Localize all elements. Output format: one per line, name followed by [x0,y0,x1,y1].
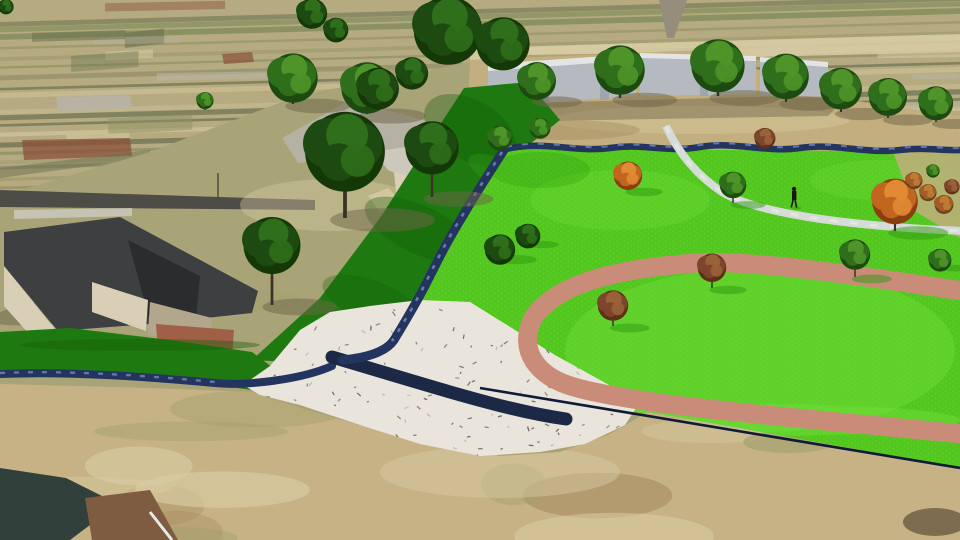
park-3d-render [0,0,960,540]
tree-canopy [310,10,323,23]
pedestrian-body [792,191,796,200]
tree-canopy [715,60,737,82]
tree-canopy [732,182,743,193]
tree-canopy [934,100,948,114]
tree-canopy [535,77,551,93]
tree-canopy [839,84,857,102]
riprap-rock [478,448,483,449]
render-frame [0,0,960,540]
tree-canopy [376,84,394,102]
tree-canopy [444,23,473,52]
tree-canopy [500,38,522,60]
tree-canopy [290,73,311,94]
tree-canopy [764,136,773,145]
tree-canopy [499,135,509,145]
tree-canopy [943,203,951,211]
tree-canopy [932,170,938,176]
tree-canopy [927,191,934,198]
tree-shadow [709,286,747,294]
tree-canopy [410,70,424,84]
red-field-patch [222,52,254,64]
tree-canopy [711,265,723,277]
lawn-shade [490,152,590,188]
pedestrian-head [792,187,796,191]
tree-shadow [263,299,338,316]
tree-canopy [335,27,345,37]
tree-shadow [852,275,892,284]
tree-canopy [498,246,511,259]
dirt-blob [135,471,310,507]
tree-canopy [893,197,912,216]
tree-canopy [939,258,949,268]
tree-shadow [888,226,948,239]
tree-canopy [611,302,624,315]
tree-shadow [709,90,779,106]
tree-shadow [610,324,650,333]
tree-shadow [612,93,677,108]
riprap-rock [407,395,410,397]
tree-canopy [5,5,11,11]
tree-shadow [423,191,493,207]
tree-canopy [627,173,639,185]
tree-canopy [951,185,957,191]
tree-canopy [539,126,548,135]
west-bank-shade [20,339,260,351]
tree-shadow [731,201,766,209]
tree-canopy [269,240,293,264]
tree-canopy [617,65,638,86]
dirt-blob [94,422,288,442]
tree-canopy [913,179,920,186]
tree-canopy [341,143,375,177]
tree-canopy [853,251,866,264]
riprap-rock [496,347,497,350]
tree-canopy [429,142,451,164]
tree-canopy [204,99,211,106]
tree-canopy [527,233,537,243]
riprap-rock [537,441,539,442]
tree-canopy [784,72,803,91]
tree-canopy [886,93,902,109]
